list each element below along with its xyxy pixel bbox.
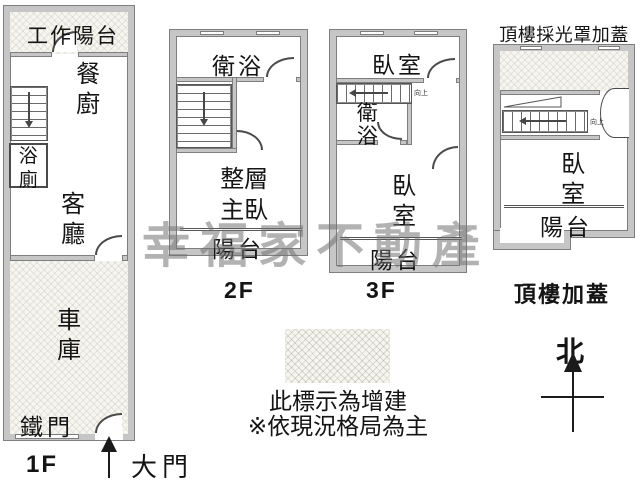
floor-label-3f: 3F [366,277,397,304]
watermark: 幸福家不動產 [142,206,490,276]
label-main-door: 大門 [131,447,193,480]
room-label-garage: 車庫 [55,306,83,367]
room-label-bathroom-2f: 衛浴 [212,47,264,81]
wall-segment [400,140,407,145]
room-label-work-balcony: 工作陽台 [27,20,119,50]
window-mark [200,31,224,35]
floor-label-2f: 2F [224,277,255,304]
room-label-bathroom-3f: 衛浴 [355,102,380,148]
stair-arrow-1f [28,92,30,122]
stair-arrow-head-roof [515,117,526,125]
stair-arrow-2f [203,92,205,120]
label-iron-door: 鐵門 [20,408,74,442]
stair-arrow-roof [522,120,566,122]
main-door-arrow-head [101,436,117,452]
north-arrow-head [564,352,582,372]
legend-note-line2: ※依現況格局為主 [222,407,454,441]
double-door-arc-roof [600,88,629,138]
room-label-bathroom-1f: 浴廁 [17,145,39,193]
legend-hatch-swatch [285,329,390,383]
stair-note-3f: 向上 [414,88,428,98]
wall-segment [78,52,128,57]
wall-segment [500,135,600,140]
roof-title: 頂樓採光罩加蓋 [490,21,638,47]
north-arrow-shaft [572,370,574,432]
wall-segment [176,148,237,153]
wall-segment [10,255,95,261]
room-label-bedroom-roof: 臥室 [559,150,587,211]
north-arrow-crossbar [541,396,604,398]
stair-arrow-head-1f [25,121,33,132]
floorplan-sheet: 工作陽台 餐廚 浴廁 客廳 車庫 鐵門 1F 大門 衛浴 整層主臥 陽台 2F … [0,0,640,480]
window-mark [414,31,438,35]
wall-segment [456,78,460,83]
room-label-bedroom-upper-3f: 臥室 [372,46,424,80]
room-label-balcony-roof: 陽台 [540,208,592,242]
wall-segment [122,255,128,261]
stair-arrow-3f [352,92,388,94]
stair-note-roof: 向上 [590,117,604,127]
room-label-dining-kitchen: 餐廚 [74,60,102,121]
floor-label-roof: 頂樓加蓋 [514,277,610,309]
stair-arrow-head-2f [200,119,208,130]
stair-arrow-head-3f [345,89,356,97]
window-mark [256,31,280,35]
wall-segment [296,77,301,82]
window-mark [360,31,384,35]
skylight-cover-area [500,51,628,92]
room-label-living: 客廳 [59,190,87,251]
floor-label-1f: 1F [26,451,58,479]
stair-direction-triangle [502,95,564,109]
wall-segment [10,52,52,57]
